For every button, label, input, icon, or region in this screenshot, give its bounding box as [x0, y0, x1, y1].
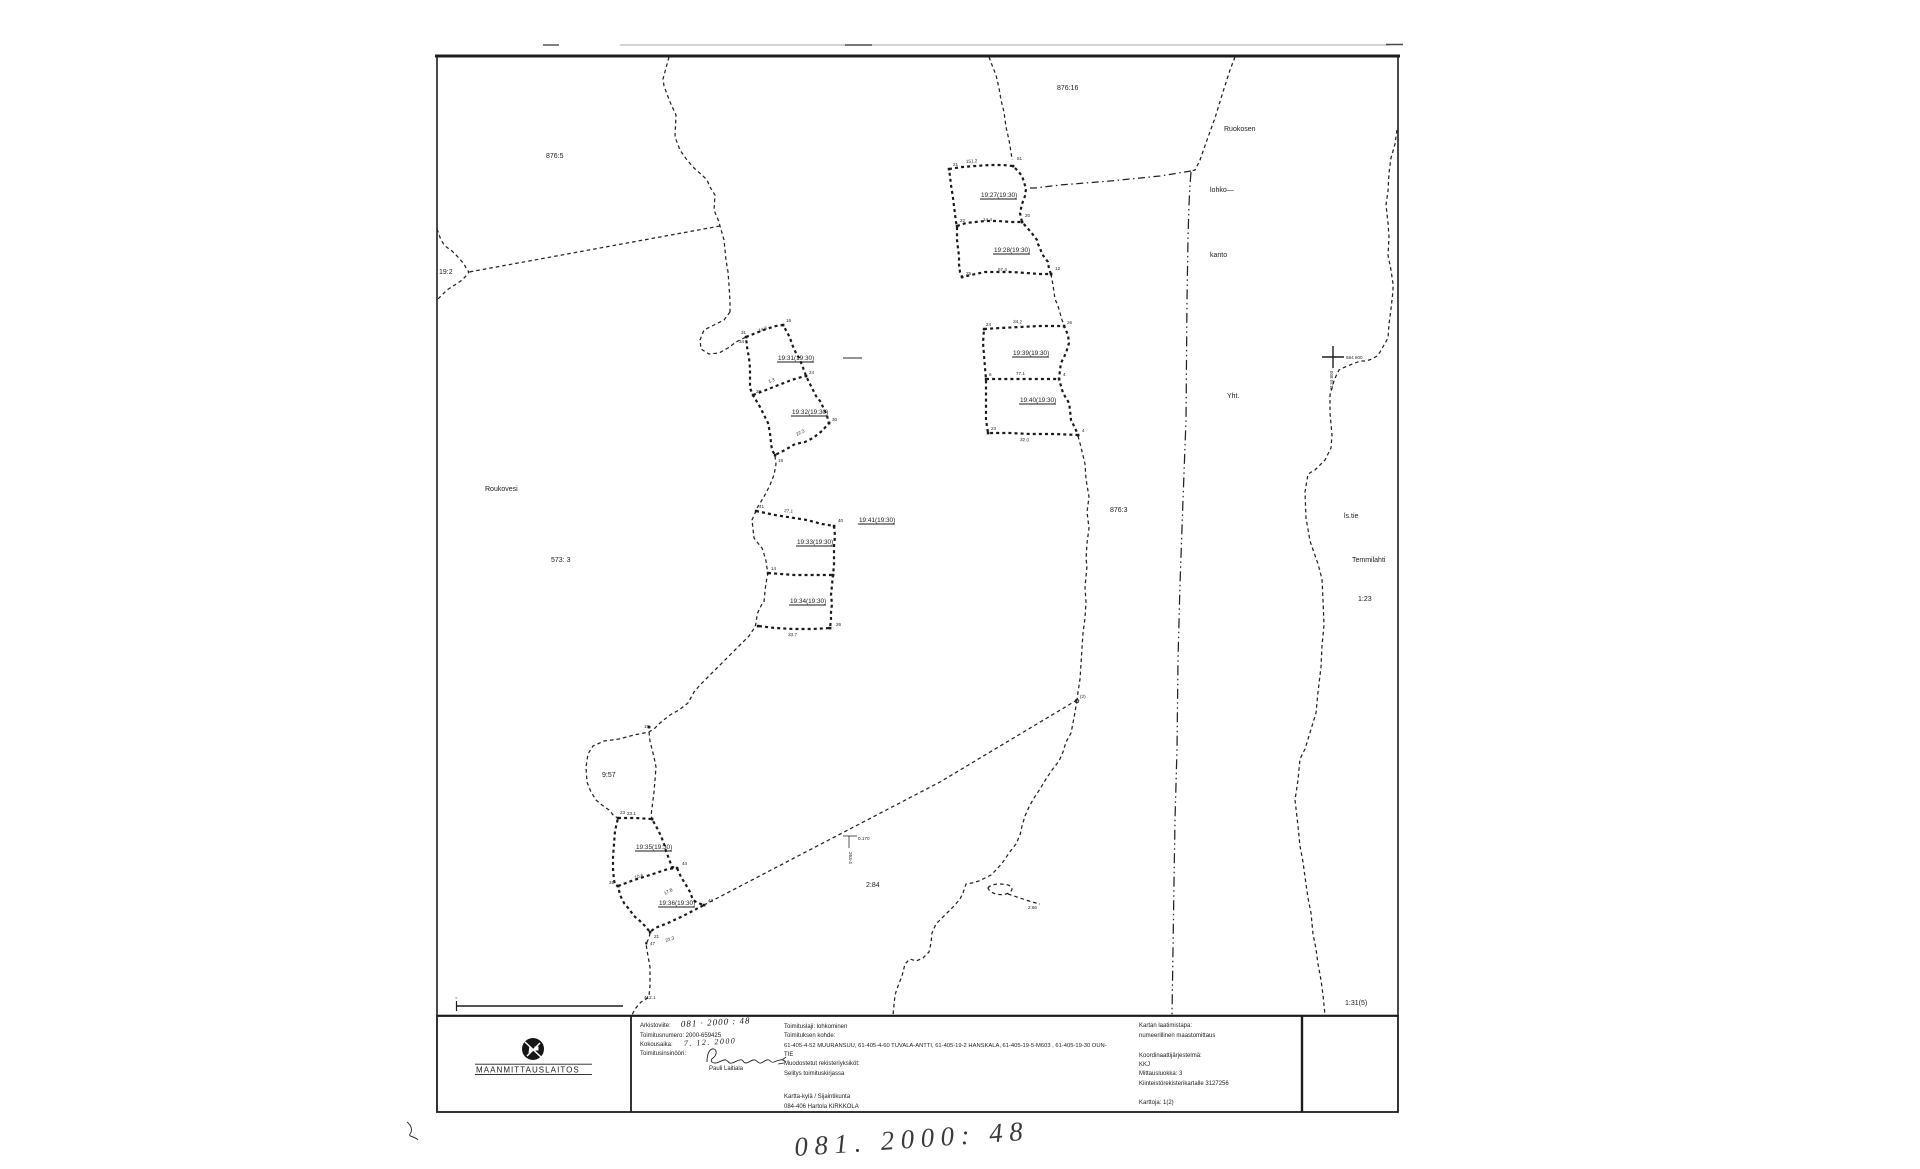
- svg-text:19: 19: [644, 724, 650, 729]
- svg-text:19:27(19:30): 19:27(19:30): [981, 192, 1017, 199]
- svg-text:876:5: 876:5: [546, 153, 564, 160]
- svg-text:44: 44: [682, 861, 688, 866]
- svg-text:32.0: 32.0: [1020, 437, 1030, 442]
- svg-text:2:84: 2:84: [866, 882, 880, 889]
- svg-text:263-4: 263-4: [848, 852, 853, 864]
- svg-text:33.7: 33.7: [788, 632, 798, 637]
- svg-text:34: 34: [739, 339, 745, 344]
- svg-text:19:28(19:30): 19:28(19:30): [994, 247, 1030, 254]
- svg-text:34.2: 34.2: [1013, 319, 1023, 324]
- svg-text:41: 41: [759, 504, 765, 509]
- svg-text:4: 4: [1063, 372, 1066, 377]
- svg-text:Yht.: Yht.: [1227, 393, 1240, 400]
- svg-text:23: 23: [991, 426, 997, 431]
- svg-text:21: 21: [953, 162, 959, 167]
- svg-text:43: 43: [708, 898, 714, 903]
- svg-text:47: 47: [650, 941, 656, 946]
- svg-text:Karttoja: 1(2): Karttoja: 1(2): [1139, 1100, 1174, 1106]
- svg-text:19:36(19:30): 19:36(19:30): [659, 900, 695, 907]
- svg-text:TIE: TIE: [784, 1052, 793, 1058]
- svg-text:Kokousaika:: Kokousaika:: [640, 1042, 673, 1048]
- svg-text:684 800: 684 800: [1346, 355, 1363, 360]
- svg-text:151.2: 151.2: [966, 158, 978, 164]
- svg-text:61-405-4-52 MUURANSUU, 61-405-: 61-405-4-52 MUURANSUU, 61-405-4-60 TUVAL…: [784, 1043, 1107, 1049]
- svg-text:19:40(19:30): 19:40(19:30): [1020, 397, 1056, 404]
- svg-text:40: 40: [838, 518, 844, 523]
- svg-text:19:33(19:30): 19:33(19:30): [797, 539, 833, 546]
- svg-text:573: 3: 573: 3: [551, 557, 571, 564]
- svg-text:77.1: 77.1: [1016, 371, 1025, 376]
- svg-text:876:16: 876:16: [1057, 85, 1079, 92]
- svg-text:(2): (2): [1080, 694, 1086, 699]
- svg-text:30: 30: [832, 417, 838, 422]
- svg-text:numeerillinen maastomittaus: numeerillinen maastomittaus: [1139, 1033, 1215, 1039]
- svg-text:19:2: 19:2: [439, 269, 453, 276]
- svg-text:kanto: kanto: [1210, 252, 1227, 259]
- svg-text:=: =: [455, 995, 458, 1000]
- svg-text:Muodostetut rekisteriyksiköt:: Muodostetut rekisteriyksiköt:: [784, 1061, 860, 1067]
- svg-text:Kartan laatimistapa:: Kartan laatimistapa:: [1139, 1023, 1192, 1029]
- svg-text:15: 15: [778, 458, 784, 463]
- svg-text:Toimitusinsinööri:: Toimitusinsinööri:: [640, 1051, 686, 1057]
- svg-text:Temmilahti: Temmilahti: [1352, 557, 1386, 564]
- svg-text:51: 51: [1017, 156, 1023, 161]
- svg-text:28: 28: [756, 389, 762, 394]
- svg-text:Koordinaattijärjestelmä:: Koordinaattijärjestelmä:: [1139, 1053, 1202, 1059]
- svg-text:876:3: 876:3: [1110, 507, 1128, 514]
- svg-text:412.1: 412.1: [644, 995, 656, 1000]
- svg-text:Pauli Laitiala: Pauli Laitiala: [709, 1066, 744, 1072]
- svg-text:26: 26: [1067, 320, 1073, 325]
- svg-text:lohko—: lohko—: [1210, 187, 1234, 194]
- svg-text:31: 31: [741, 330, 747, 335]
- svg-text:19:31(19:30): 19:31(19:30): [778, 355, 814, 362]
- svg-text:Kiinteistörekisterikartalle 31: Kiinteistörekisterikartalle 3127256: [1139, 1081, 1229, 1087]
- svg-text:Arkistoviite:: Arkistoviite:: [640, 1023, 671, 1029]
- svg-text:Mittausluokka: 3: Mittausluokka: 3: [1139, 1071, 1183, 1077]
- svg-text:1:31(5): 1:31(5): [1345, 1000, 1367, 1007]
- svg-text:20: 20: [1025, 213, 1031, 218]
- svg-text:4: 4: [1082, 428, 1085, 433]
- svg-text:7134 800: 7134 800: [1329, 370, 1334, 390]
- svg-text:MAANMITTAUSLAITOS: MAANMITTAUSLAITOS: [476, 1066, 580, 1075]
- svg-text:Toimituslaji: lohkominen: Toimituslaji: lohkominen: [784, 1024, 847, 1030]
- svg-text:25: 25: [966, 271, 972, 276]
- svg-text:2:66: 2:66: [1028, 905, 1037, 910]
- svg-text:23: 23: [620, 810, 626, 815]
- svg-text:19:35(19:30): 19:35(19:30): [636, 844, 672, 851]
- svg-text:084-406 Hartola KIRKKOLA: 084-406 Hartola KIRKKOLA: [784, 1104, 859, 1110]
- svg-text:Ruokosen: Ruokosen: [1224, 126, 1256, 133]
- svg-text:19:41(19:30): 19:41(19:30): [859, 517, 895, 524]
- svg-text:16: 16: [786, 318, 792, 323]
- svg-text:KKJ: KKJ: [1139, 1062, 1150, 1068]
- svg-text:6: 6: [989, 372, 992, 377]
- svg-text:ls.tie: ls.tie: [1344, 513, 1359, 520]
- svg-text:Roukovesi: Roukovesi: [485, 486, 518, 493]
- svg-text:14.4: 14.4: [983, 217, 992, 222]
- svg-text:9:57: 9:57: [602, 772, 616, 779]
- svg-text:Kartta-kylä / Sijaintikunta: Kartta-kylä / Sijaintikunta: [784, 1094, 851, 1100]
- svg-text:23.1: 23.1: [627, 811, 636, 816]
- svg-text:Selitys toimituskirjassa: Selitys toimituskirjassa: [784, 1071, 845, 1077]
- svg-text:57.4: 57.4: [998, 267, 1007, 272]
- svg-text:24: 24: [809, 370, 815, 375]
- svg-text:19:39(19:30): 19:39(19:30): [1013, 350, 1049, 357]
- svg-text:21: 21: [654, 934, 660, 939]
- svg-text:27.1: 27.1: [784, 508, 794, 514]
- svg-text:14: 14: [771, 566, 777, 571]
- svg-text:22: 22: [960, 218, 966, 223]
- svg-text:1:23: 1:23: [1358, 596, 1372, 603]
- svg-text:31: 31: [609, 880, 615, 885]
- svg-text:Toimituksen kohde:: Toimituksen kohde:: [784, 1033, 836, 1039]
- svg-text:12: 12: [1055, 266, 1061, 271]
- svg-text:19:32(19:30): 19:32(19:30): [792, 409, 828, 416]
- svg-text:26: 26: [836, 622, 842, 627]
- svg-text:19:34(19:30): 19:34(19:30): [790, 598, 826, 605]
- svg-text:24: 24: [986, 322, 992, 327]
- svg-text:0.170: 0.170: [858, 836, 870, 841]
